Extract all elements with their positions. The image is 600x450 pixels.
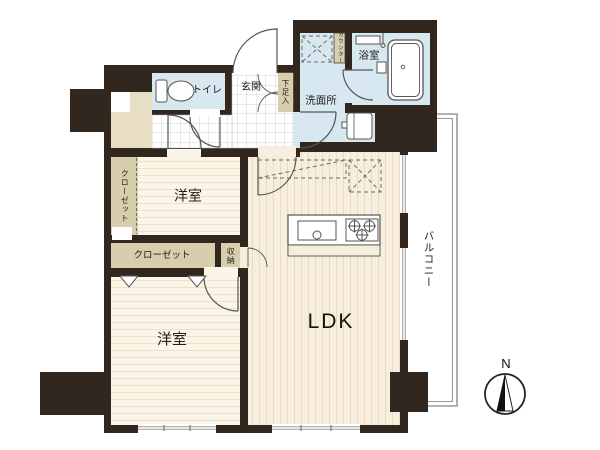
bedroom-lower-label: 洋室 (157, 332, 187, 348)
floor-plan-drawing (0, 0, 600, 450)
kitchen-island (288, 215, 380, 256)
washbasin-icon (342, 113, 372, 139)
toilet-icon (156, 80, 194, 102)
bathtub-icon (388, 40, 423, 100)
bedroom-lower-floor (111, 277, 240, 425)
balcony-window-2 (400, 248, 408, 340)
compass-north-label: N (501, 357, 510, 371)
closet-lower-label: クローゼット (133, 251, 190, 261)
pillar-block (390, 372, 428, 412)
ldk-label: LDK (308, 311, 355, 333)
bedroom-upper-label: 洋室 (174, 189, 202, 204)
ldk-window (272, 424, 360, 433)
balcony-window-1 (400, 155, 408, 213)
counter-label: カウンター (336, 32, 342, 65)
toilet-label: トイレ (192, 86, 222, 97)
compass-icon (485, 374, 525, 414)
floor-plan: トイレ 玄関 下足入 洗面所 浴室 カウンター クローゼット 洋室 クローゼット… (0, 0, 600, 450)
entrance-label: 玄関 (241, 83, 261, 94)
balcony-label: バルコニー (422, 230, 433, 288)
shoe-cabinet-label: 下足入 (281, 79, 289, 105)
closet-upper-label: クローゼット (120, 169, 128, 223)
bedroom-lower-window (138, 424, 216, 433)
storage-label: 収納 (226, 247, 234, 265)
bathroom-label: 浴室 (359, 50, 380, 61)
washroom-label: 洗面所 (305, 95, 337, 106)
